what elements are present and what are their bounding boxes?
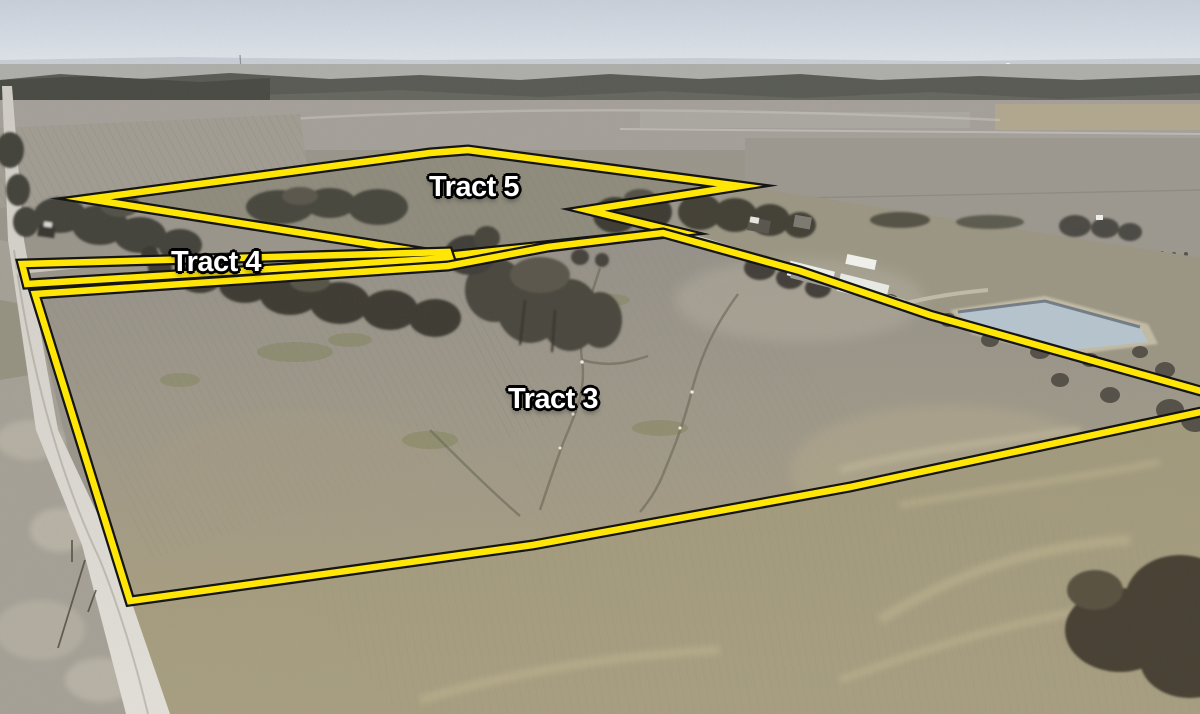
- aerial-photo-canvas: [0, 0, 1200, 714]
- tract-4-label: Tract 4: [171, 246, 261, 279]
- tract-3-label: Tract 3: [508, 383, 598, 416]
- aerial-tract-photo: Tract 5 Tract 4 Tract 3: [0, 0, 1200, 714]
- tract-5-label: Tract 5: [429, 171, 519, 204]
- grain-overlay: [0, 0, 1200, 714]
